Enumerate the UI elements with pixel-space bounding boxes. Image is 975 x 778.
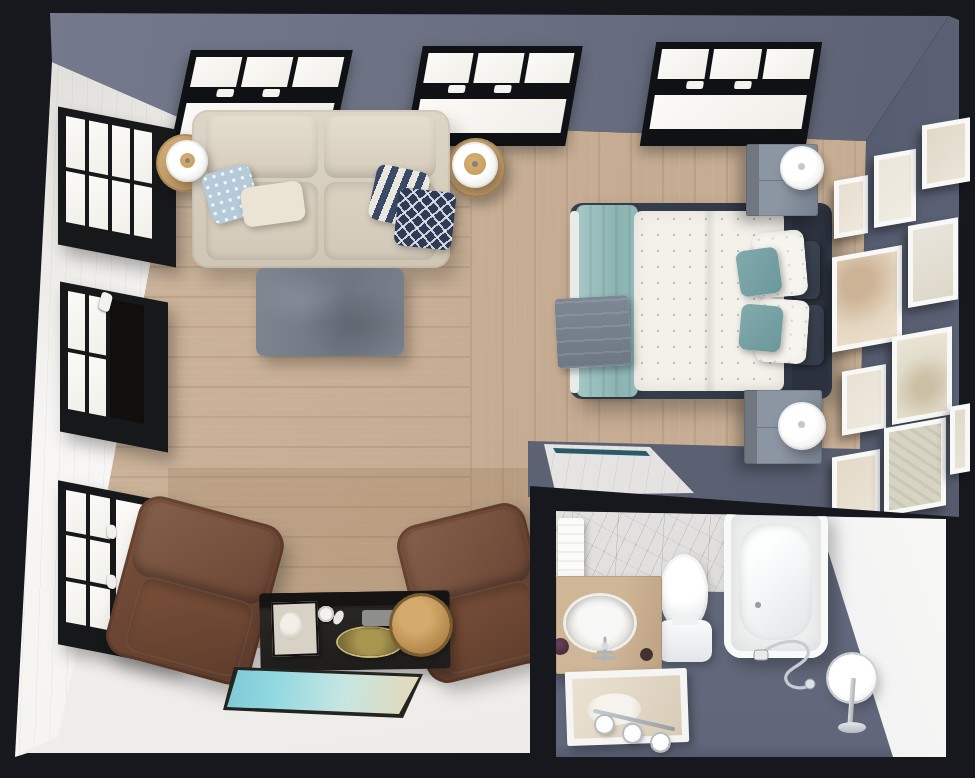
frame-art [847,370,881,430]
ottoman-coffee-table [256,268,404,356]
window-pane [66,116,85,171]
skylight-3-upper-panes [657,49,814,79]
sconce-light [652,734,669,751]
west-window-1-right-sash [112,125,152,239]
window-pane [292,57,344,87]
hand-towel [558,518,584,580]
picture-frame [950,403,970,475]
picture-frame [922,117,970,189]
window-pane [423,53,474,83]
window-pane [190,57,242,87]
window-pane [657,49,709,79]
brass-round-tray [392,596,450,654]
table-lamp-right [452,142,498,188]
pillow-navy-diamond [393,187,457,251]
pillow-cream-script [240,180,307,228]
west-window-2-glazed-sash [68,291,106,416]
window-latch [262,89,281,97]
white-cup [318,606,334,622]
west-window-3-left-sash [66,490,110,631]
window-pane [134,184,152,238]
window-latch [107,574,116,590]
frame-art [897,332,947,419]
window-pane [89,121,108,176]
teal-accent-pillow [738,303,784,352]
picture-frame [884,417,946,516]
lamp-finial [472,161,478,167]
window-pane [68,352,85,412]
west-window-1-left-sash [66,116,108,230]
skylight-3-lower-pane [649,91,807,129]
window-pane [524,53,575,83]
frame-art [839,181,863,233]
gray-folded-blanket [554,295,632,369]
toilet-hinge [672,616,698,625]
lamp-finial [798,163,805,170]
window-pane [134,129,152,183]
window-pane [66,535,86,580]
west-window-1 [58,107,176,268]
window-pane [710,49,762,79]
window-pane [89,356,106,416]
picture-frame [842,364,886,436]
nightstand-side-face [746,144,759,216]
photo-subject [279,612,302,641]
teal-accent-pillow [735,246,783,297]
floorplan-render [0,0,975,778]
frame-art [889,423,941,510]
frame-art [913,223,953,302]
west-window-2-dark-panel [110,299,144,424]
window-pane [241,57,293,87]
framed-photo [271,601,319,657]
table-lamp-left [166,140,208,182]
nightstand-lamp-bottom [778,402,826,450]
skylight-1-upper-panes [190,57,344,87]
vanity-accessory [640,648,653,661]
skylight-1-hardware-band [187,87,338,99]
window-latch [494,85,512,93]
nightstand-side-face [744,390,757,464]
skylight-2-hardware-band [421,83,569,95]
lamp-finial [798,421,805,428]
frame-art [955,409,965,469]
window-pane [89,176,108,231]
window-latch [734,81,752,89]
bathtub-drain [755,602,761,608]
sink-faucet-icon [586,636,624,664]
sconce-light [596,716,613,733]
window-pane [66,171,85,226]
picture-frame [908,217,958,308]
bathtub-basin [739,523,812,640]
window-pane [762,49,814,79]
gallery-wall [832,113,962,488]
skylight-window-3 [640,42,822,146]
bed [570,203,832,399]
window-pane [112,125,130,179]
frame-art [837,251,897,347]
window-pane [474,53,525,83]
window-pane [112,180,130,234]
frame-art [879,155,911,223]
picture-frame [834,175,868,239]
sconce-light [624,725,641,742]
west-window-2 [60,282,168,453]
window-latch [216,89,235,97]
lamp-finial [185,158,190,163]
window-pane [66,490,86,535]
toilet-tank [658,620,712,662]
nightstand-lamp-top [780,146,824,190]
window-pane [66,581,86,626]
picture-frame [892,326,952,425]
skylight-3-hardware-band [655,79,809,91]
window-latch [448,85,466,93]
frame-art [927,123,965,184]
skylight-2-upper-panes [423,53,574,83]
window-latch [686,81,704,89]
mirror-stand-base [838,722,866,733]
window-pane [90,585,110,630]
window-latch [107,524,116,540]
window-pane [68,291,85,351]
picture-frame [874,149,916,228]
